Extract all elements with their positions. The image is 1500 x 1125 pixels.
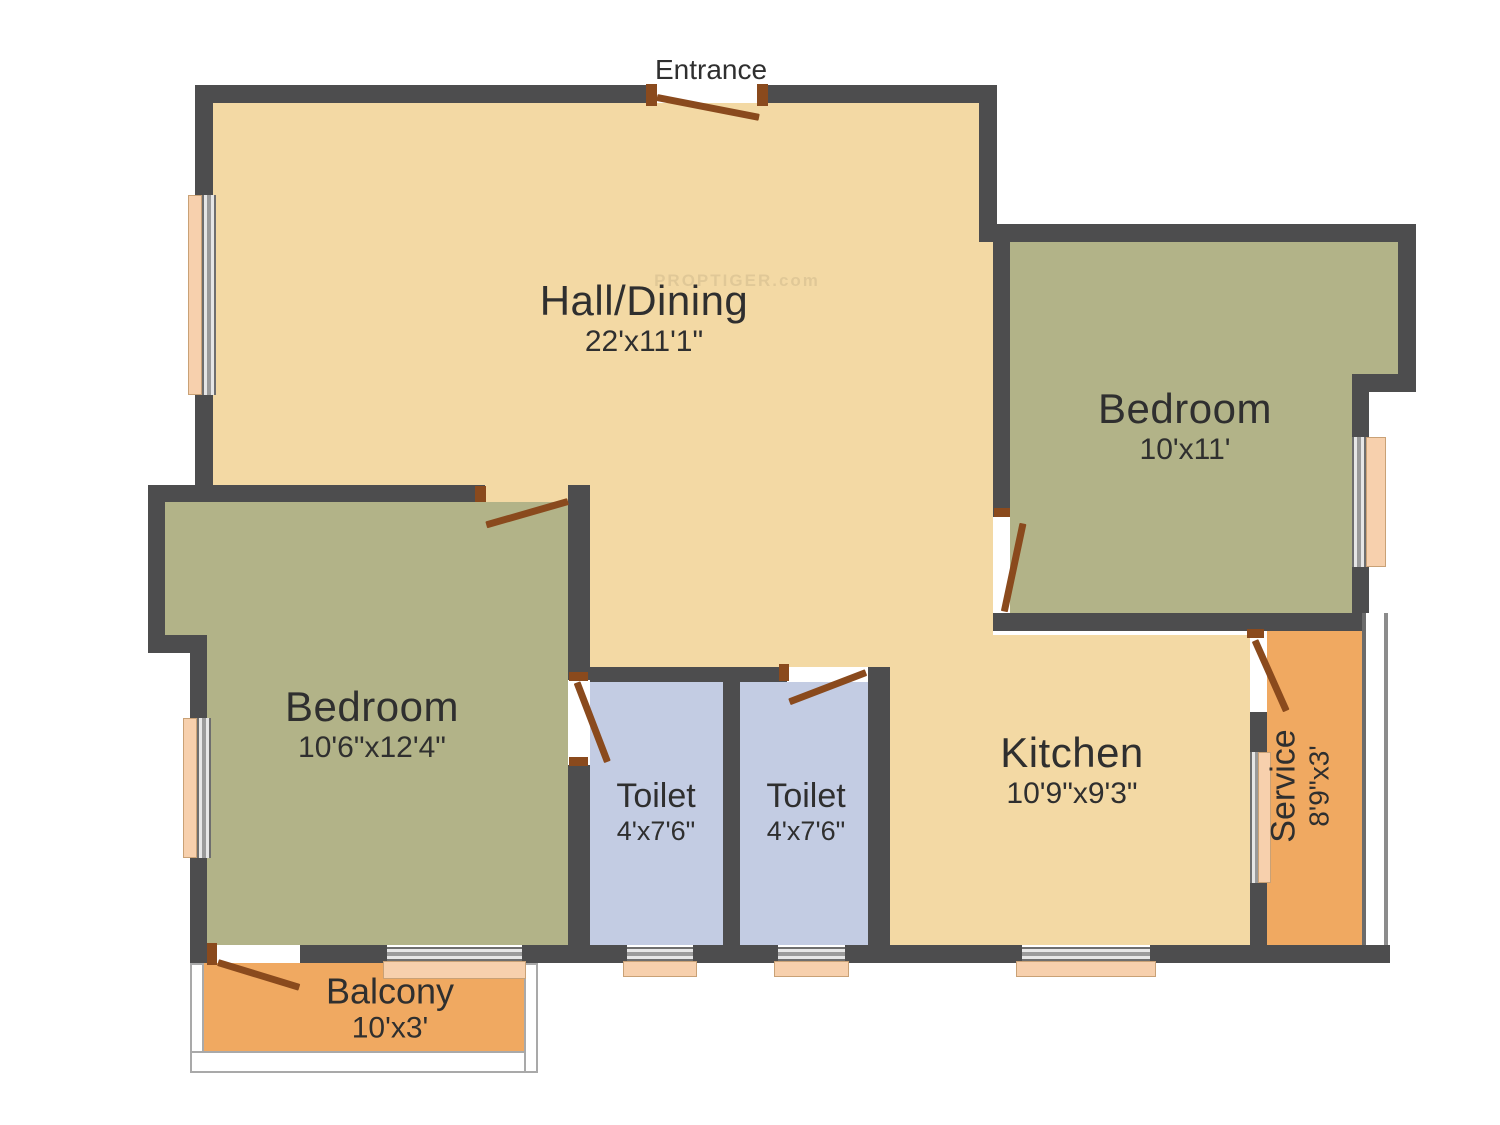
bedroom-right-floor bbox=[1010, 242, 1398, 374]
service-grill-railing bbox=[1362, 613, 1388, 963]
room-dims: 10'6"x12'4" bbox=[285, 731, 459, 765]
kitchen-window bbox=[1022, 947, 1150, 961]
room-name: Toilet bbox=[616, 777, 695, 816]
room-dims: 8'9"x3' bbox=[1303, 729, 1335, 842]
wall-segment bbox=[723, 667, 740, 963]
room-name: Bedroom bbox=[1098, 385, 1272, 433]
window-sill bbox=[623, 961, 697, 977]
room-name: Service bbox=[1265, 729, 1304, 842]
room-dims: 10'x11' bbox=[1098, 433, 1272, 467]
wall-segment bbox=[522, 945, 627, 963]
window-sill bbox=[1016, 961, 1156, 977]
toilet-right-vent-window bbox=[778, 947, 845, 961]
wall-segment bbox=[568, 485, 590, 680]
wall-segment bbox=[765, 85, 997, 103]
door-jamb bbox=[475, 486, 486, 502]
door-jamb bbox=[1247, 629, 1264, 638]
wall-segment bbox=[195, 85, 657, 103]
bedroom-left-bottom-window bbox=[387, 947, 522, 961]
bedroom-right-window bbox=[1352, 437, 1366, 567]
wall-segment bbox=[693, 945, 778, 963]
door-jamb bbox=[569, 757, 588, 766]
wall-segment bbox=[148, 485, 165, 647]
room-dims: 10'9"x9'3" bbox=[1000, 777, 1144, 811]
bedroom-right-label: Bedroom 10'x11' bbox=[1098, 385, 1272, 467]
wall-segment bbox=[195, 103, 213, 195]
wall-segment bbox=[190, 653, 207, 718]
wall-segment bbox=[868, 667, 890, 963]
wall-segment bbox=[1398, 224, 1416, 392]
floor-plan: Entrance PROPTIGER.com Hall/Dining 22'x1… bbox=[0, 0, 1500, 1125]
wall-segment bbox=[148, 635, 207, 653]
wall-segment bbox=[1352, 374, 1416, 392]
service-window bbox=[1250, 752, 1258, 883]
room-dims: 10'x3' bbox=[326, 1011, 454, 1045]
bedroom-left-window bbox=[197, 718, 211, 858]
room-name: Hall/Dining bbox=[540, 277, 749, 325]
wall-segment bbox=[1352, 392, 1369, 437]
wall-segment bbox=[993, 242, 1010, 517]
window-sill bbox=[774, 961, 849, 977]
entrance-label: Entrance bbox=[655, 54, 767, 86]
window-sill bbox=[1366, 437, 1386, 567]
window-sill bbox=[188, 195, 202, 395]
wall-segment bbox=[195, 395, 213, 487]
door-jamb bbox=[757, 84, 768, 106]
wall-segment bbox=[148, 485, 485, 502]
wall-segment bbox=[1352, 567, 1369, 613]
balcony-railing bbox=[524, 963, 538, 1073]
hall-dining-floor bbox=[213, 103, 979, 242]
wall-segment bbox=[979, 224, 1416, 242]
door-jamb bbox=[207, 943, 217, 965]
entrance-label-text: Entrance bbox=[655, 54, 767, 85]
room-name: Kitchen bbox=[1000, 729, 1144, 777]
wall-segment bbox=[300, 945, 387, 963]
service-label: Service 8'9"x3' bbox=[1265, 729, 1336, 842]
bedroom-left-label: Bedroom 10'6"x12'4" bbox=[285, 683, 459, 765]
wall-segment bbox=[1250, 883, 1267, 945]
bedroom-left-floor bbox=[165, 502, 568, 647]
hall-dining-label: Hall/Dining 22'x11'1" bbox=[540, 277, 749, 359]
wall-segment bbox=[590, 667, 723, 682]
hall-window bbox=[202, 195, 216, 395]
kitchen-label: Kitchen 10'9"x9'3" bbox=[1000, 729, 1144, 811]
room-dims: 4'x7'6" bbox=[766, 816, 845, 847]
door-jamb bbox=[779, 664, 789, 681]
balcony-railing bbox=[190, 1051, 538, 1073]
room-name: Toilet bbox=[766, 777, 845, 816]
door-jamb bbox=[569, 672, 588, 681]
window-sill bbox=[183, 718, 197, 858]
room-name: Bedroom bbox=[285, 683, 459, 731]
door-jamb bbox=[646, 84, 657, 106]
toilet-right-label: Toilet 4'x7'6" bbox=[766, 777, 845, 847]
room-dims: 22'x11'1" bbox=[540, 325, 749, 359]
wall-segment bbox=[993, 613, 1362, 631]
room-name: Balcony bbox=[326, 970, 454, 1011]
room-dims: 4'x7'6" bbox=[616, 816, 695, 847]
wall-segment bbox=[190, 945, 207, 963]
wall-segment bbox=[568, 765, 590, 963]
wall-segment bbox=[845, 945, 1022, 963]
balcony-label: Balcony 10'x3' bbox=[326, 970, 454, 1045]
door-jamb bbox=[994, 508, 1010, 517]
toilet-left-label: Toilet 4'x7'6" bbox=[616, 777, 695, 847]
toilet-left-vent-window bbox=[627, 947, 693, 961]
wall-segment bbox=[1150, 945, 1390, 963]
wall-segment bbox=[979, 85, 997, 242]
